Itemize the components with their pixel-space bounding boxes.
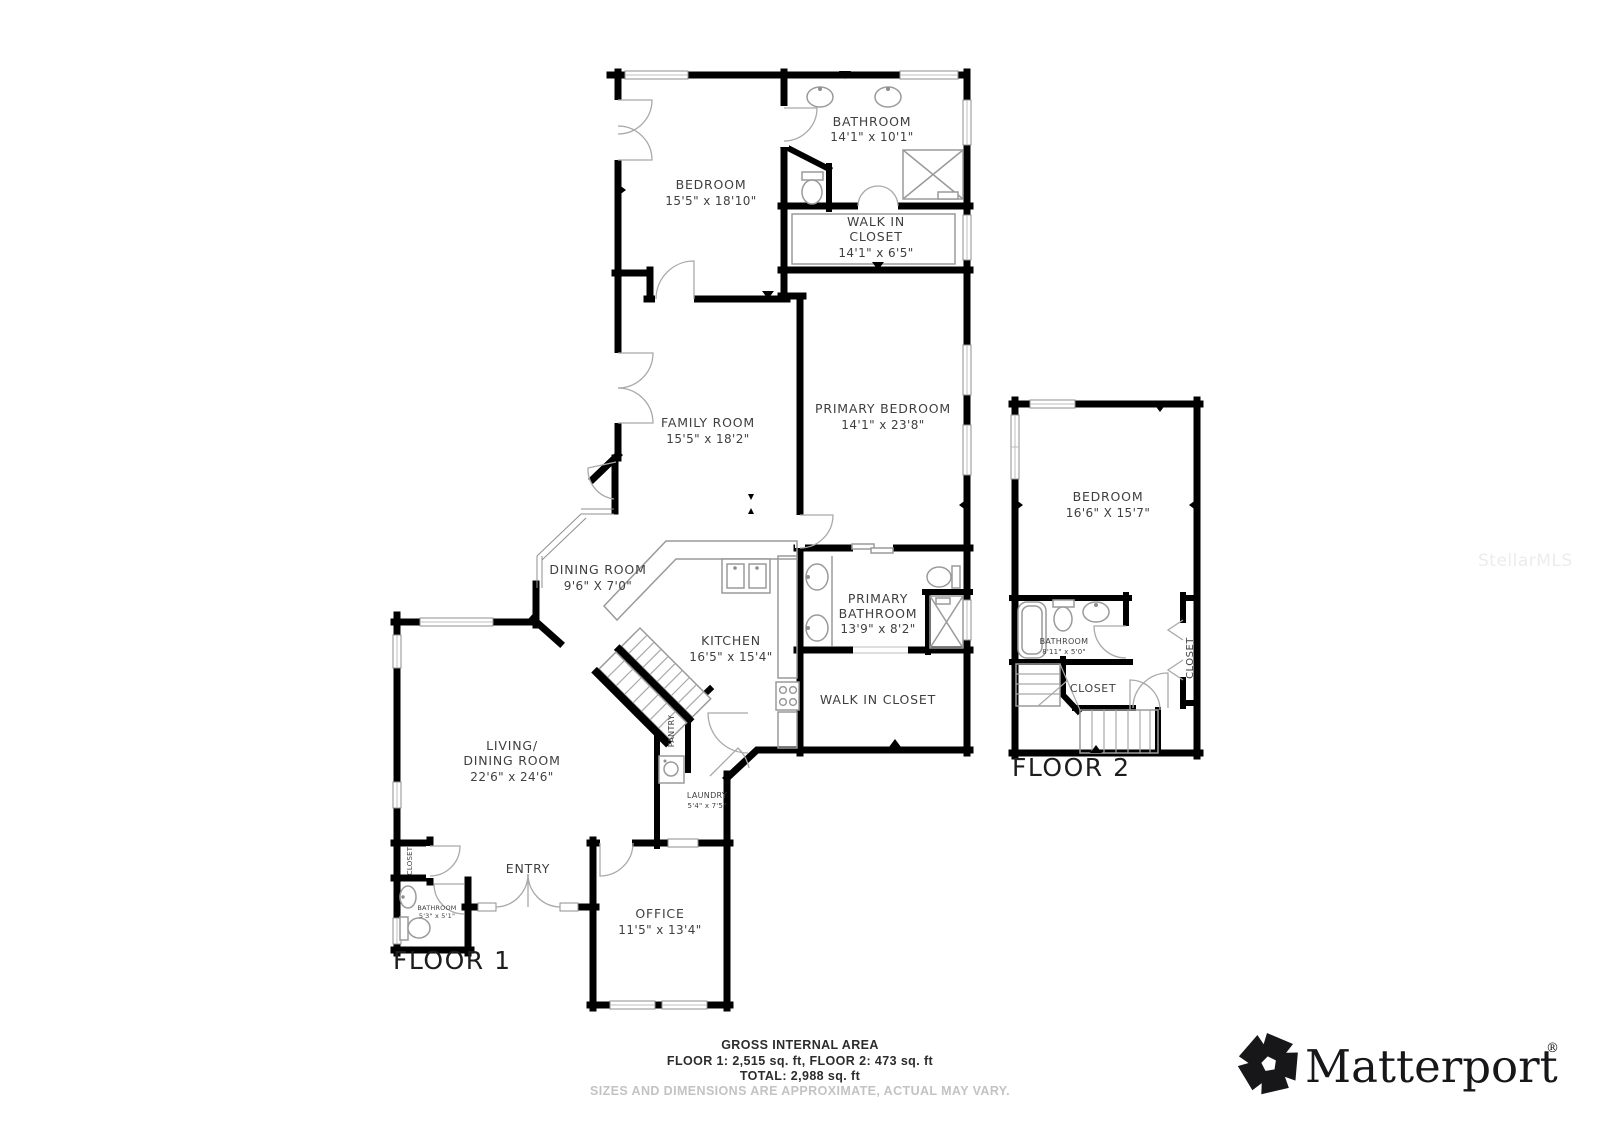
floor1-windows xyxy=(393,71,971,1009)
matterport-pinwheel-icon xyxy=(1231,1032,1306,1104)
label-primary-bedroom: PRIMARY BEDROOM xyxy=(815,401,951,416)
floor2-windows xyxy=(1011,400,1075,479)
floor1-doors xyxy=(430,100,908,914)
floor2-door-gaps xyxy=(1121,626,1131,659)
registered-mark: ® xyxy=(1546,1041,1559,1056)
label-bathroom: BATHROOM xyxy=(833,114,912,129)
label-walk-in-closet-lower: WALK IN CLOSET xyxy=(820,692,936,707)
footer: GROSS INTERNAL AREA FLOOR 1: 2,515 sq. f… xyxy=(590,1038,1010,1098)
dims-f2-bathroom: 8'11" x 5'0" xyxy=(1042,648,1086,656)
footer-areas: FLOOR 1: 2,515 sq. ft, FLOOR 2: 473 sq. … xyxy=(667,1054,934,1068)
floor2-walls xyxy=(1012,400,1200,756)
label-office: OFFICE xyxy=(635,906,684,921)
footer-disclaimer: SIZES AND DIMENSIONS ARE APPROXIMATE, AC… xyxy=(590,1084,1010,1098)
label-f2-bathroom: BATHROOM xyxy=(1040,637,1089,646)
footer-title: GROSS INTERNAL AREA xyxy=(721,1038,879,1052)
dims-family-room: 15'5" x 18'2" xyxy=(666,432,749,446)
floor2-ticks xyxy=(1015,404,1197,753)
floor-plan-canvas: BEDROOM 15'5" x 18'10" BATHROOM 14'1" x … xyxy=(0,0,1600,1130)
dims-walk-in-closet: 14'1" x 6'5" xyxy=(838,246,913,260)
label-pantry: PANTRY xyxy=(667,715,676,747)
dims-living: 22'6" x 24'6" xyxy=(470,770,553,784)
matterport-wordmark: Matterport xyxy=(1305,1040,1558,1093)
dims-dining-room: 9'6" X 7'0" xyxy=(564,579,632,593)
label-living-2: DINING ROOM xyxy=(463,753,560,768)
label-dining-room: DINING ROOM xyxy=(549,562,646,577)
floor-plan-page: BEDROOM 15'5" x 18'10" BATHROOM 14'1" x … xyxy=(0,0,1600,1130)
label-bedroom: BEDROOM xyxy=(676,177,747,192)
label-f2-closet-side: CLOSET xyxy=(1185,637,1196,679)
label-primary-bathroom-1: PRIMARY xyxy=(848,591,908,606)
label-family-room: FAMILY ROOM xyxy=(661,415,755,430)
dims-primary-bathroom: 13'9" x 8'2" xyxy=(840,622,915,636)
label-f2-closet: CLOSET xyxy=(1070,682,1116,695)
dims-f2-bedroom: 16'6" X 15'7" xyxy=(1066,506,1151,520)
label-laundry: LAUNDRY xyxy=(687,791,727,800)
label-living-1: LIVING/ xyxy=(486,738,538,753)
label-entry: ENTRY xyxy=(506,861,550,876)
floor2-title: FLOOR 2 xyxy=(1012,753,1131,782)
dims-bedroom: 15'5" x 18'10" xyxy=(665,194,756,208)
label-bathroom-small: BATHROOM xyxy=(417,904,456,912)
dims-bathroom: 14'1" x 10'1" xyxy=(830,130,913,144)
dims-laundry: 5'4" x 7'5" xyxy=(688,802,727,810)
dims-bathroom-small: 5'3" x 5'1" xyxy=(419,912,455,920)
floor1-title: FLOOR 1 xyxy=(393,946,512,975)
dims-primary-bedroom: 14'1" x 23'8" xyxy=(841,418,924,432)
label-primary-bathroom-2: BATHROOM xyxy=(839,606,918,621)
label-walk-in-closet-2: CLOSET xyxy=(849,229,902,244)
watermark: StellarMLS xyxy=(1478,551,1573,571)
label-closet-small: CLOSET xyxy=(406,846,414,875)
staircase-floor1 xyxy=(591,626,713,748)
matterport-logo: Matterport ® xyxy=(1231,1032,1559,1104)
label-walk-in-closet-1: WALK IN xyxy=(847,214,905,229)
floor1-door-gaps xyxy=(426,100,908,912)
footer-total: TOTAL: 2,988 sq. ft xyxy=(740,1069,861,1083)
dims-kitchen: 16'5" x 15'4" xyxy=(689,650,772,664)
dims-office: 11'5" x 13'4" xyxy=(618,923,701,937)
floor1-walls xyxy=(394,72,970,1008)
label-kitchen: KITCHEN xyxy=(701,633,761,648)
label-f2-bedroom: BEDROOM xyxy=(1073,489,1144,504)
